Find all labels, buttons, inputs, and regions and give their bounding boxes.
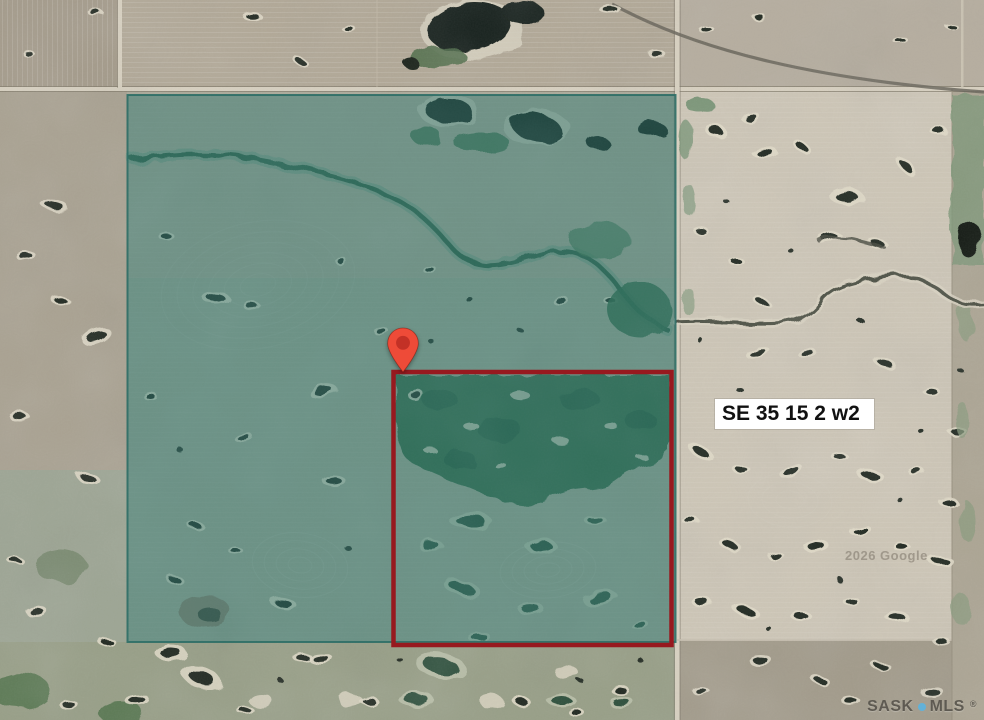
map-pin-icon[interactable]	[387, 327, 419, 373]
imagery-watermark: 2026 Google	[845, 548, 928, 563]
registered-mark: ®	[970, 699, 977, 709]
mls-text: MLS	[930, 698, 965, 716]
sask-text: SASK	[867, 698, 913, 716]
satellite-map	[0, 0, 984, 720]
mls-dot-icon	[918, 703, 926, 711]
parcel-label: SE 35 15 2 w2	[715, 399, 874, 429]
sask-mls-watermark: SASK MLS ®	[867, 698, 977, 716]
listing-photo: SE 35 15 2 w2 2026 Google SASK MLS ®	[0, 0, 984, 720]
